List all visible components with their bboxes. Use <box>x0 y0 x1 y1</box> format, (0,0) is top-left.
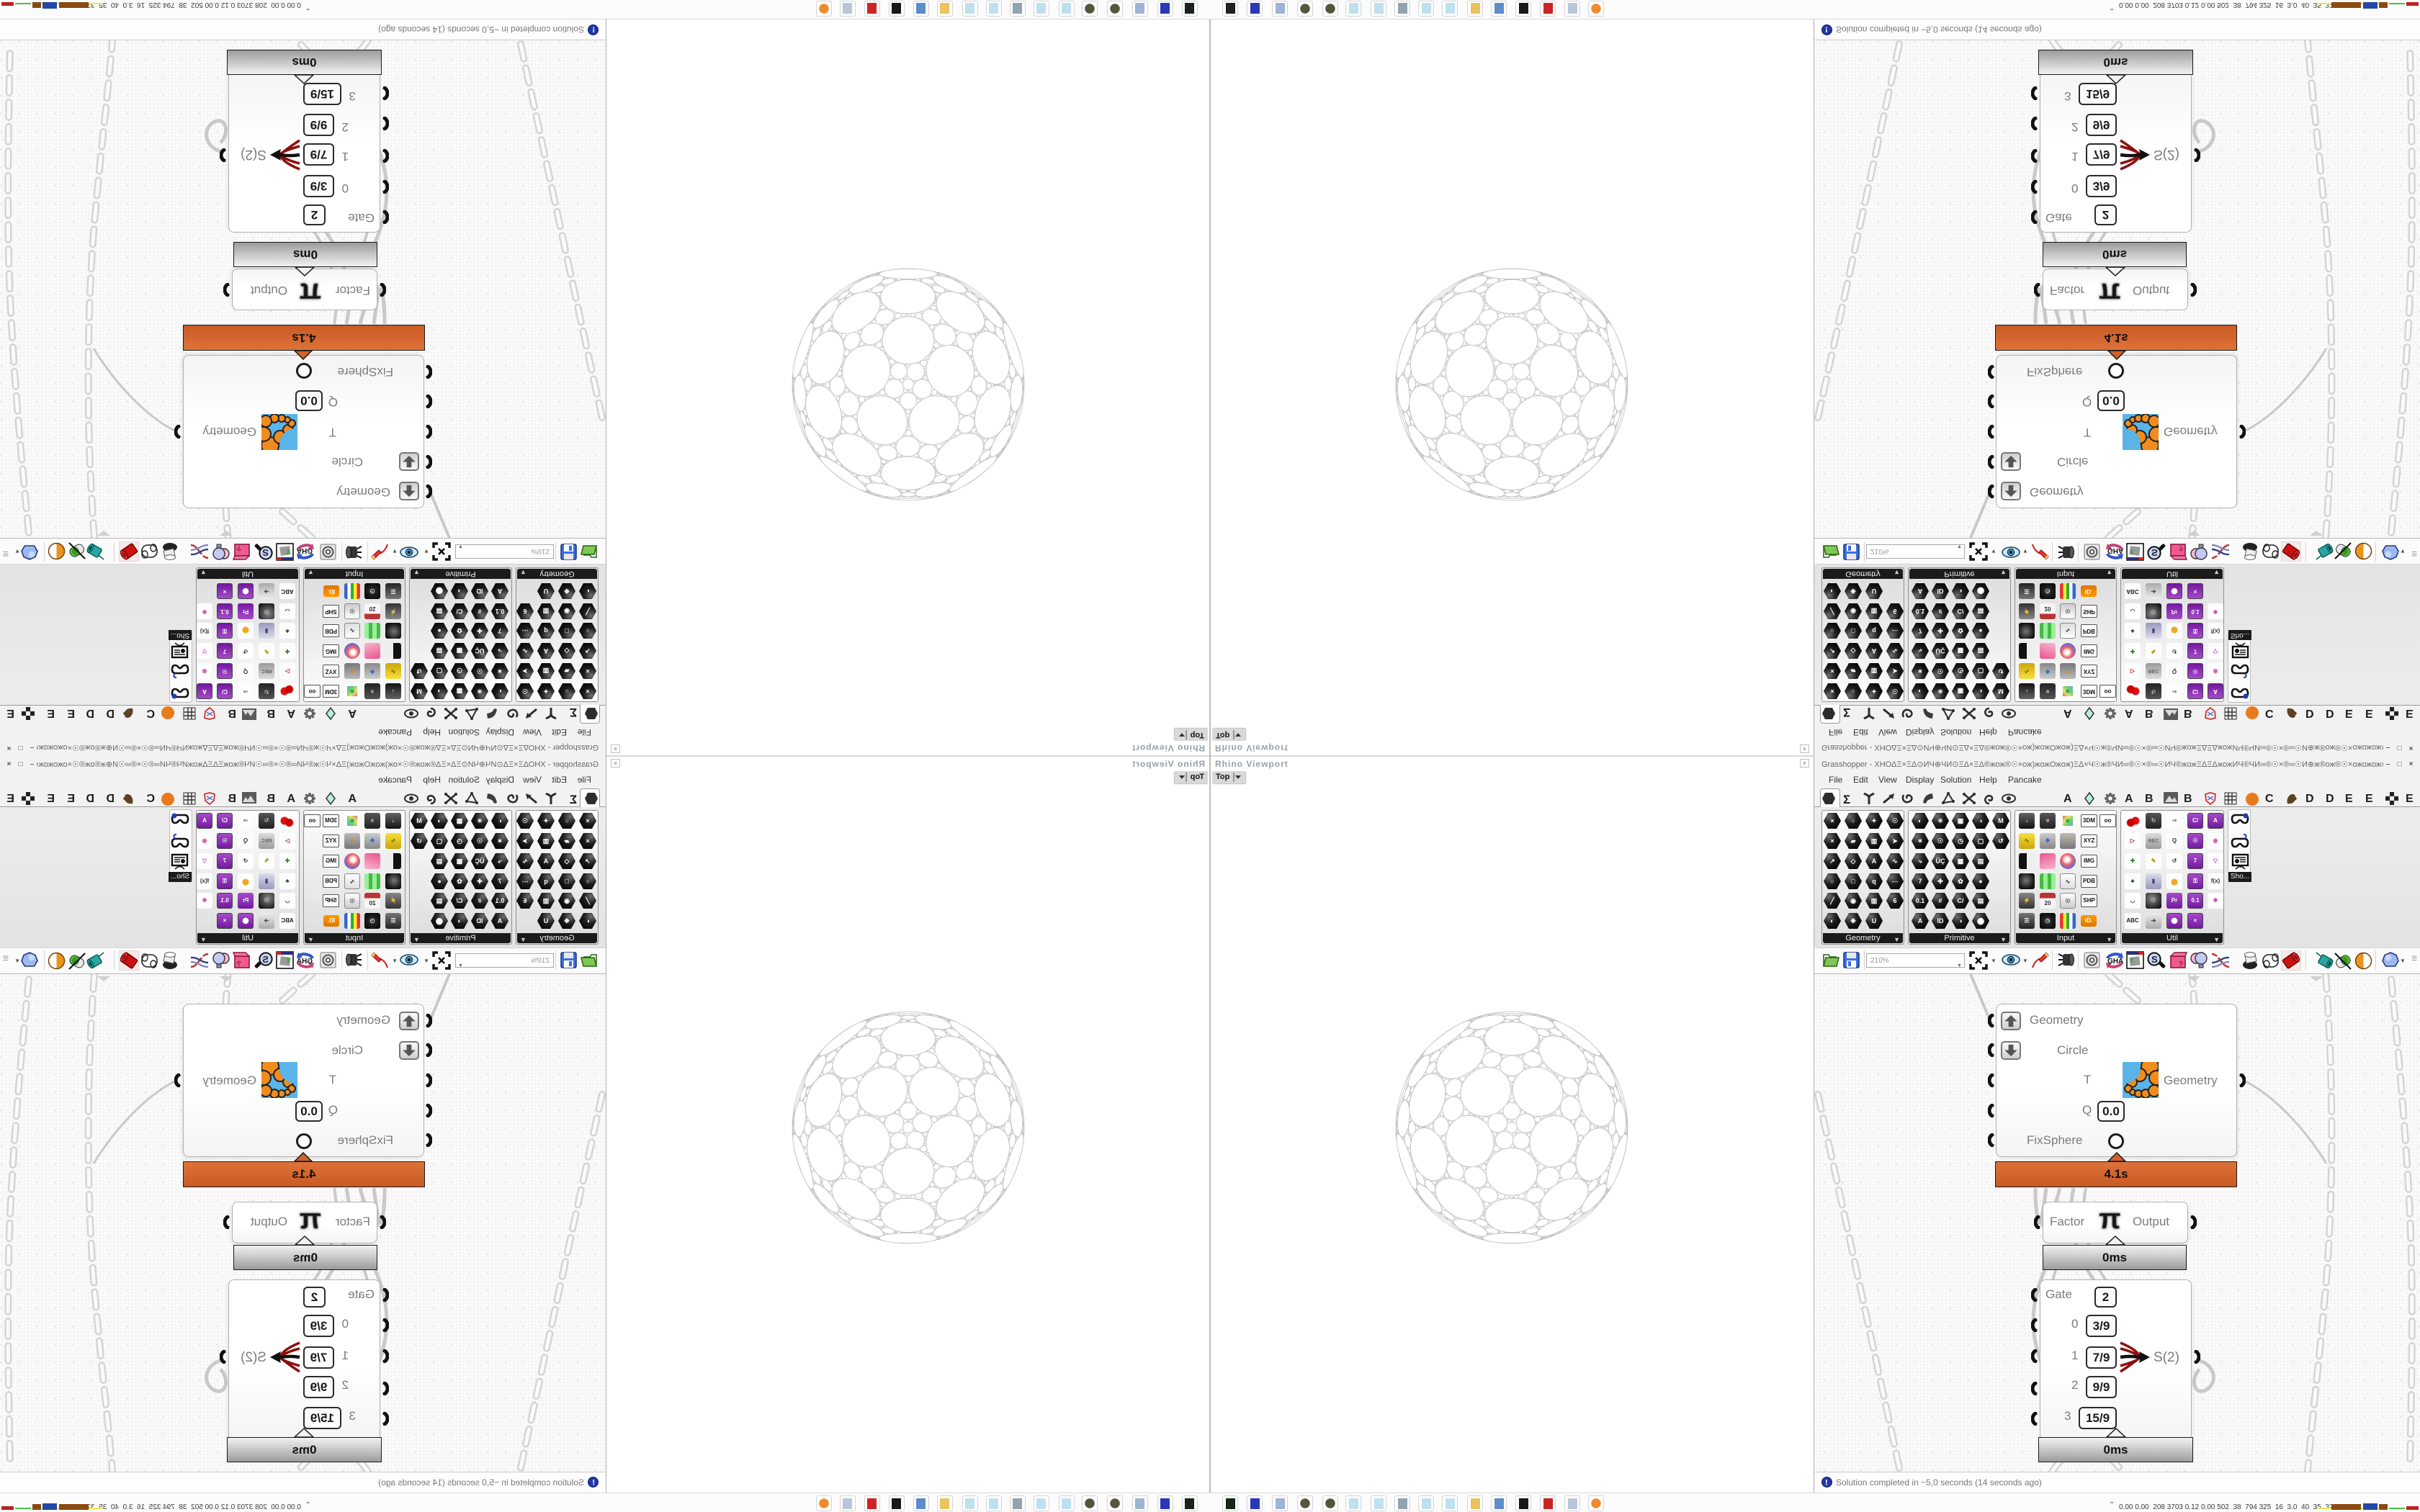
svg-text:!: ! <box>1825 1479 1828 1488</box>
svg-text:!: ! <box>592 1479 595 1488</box>
svg-text:GHA: GHA <box>297 958 313 966</box>
svg-text:S: S <box>262 547 269 558</box>
svg-text:GHA: GHA <box>297 546 313 554</box>
svg-text:S: S <box>2151 547 2158 558</box>
svg-text:GHA: GHA <box>2107 546 2123 554</box>
svg-text:?: ? <box>237 544 241 552</box>
svg-text:!: ! <box>592 25 595 34</box>
svg-text:S: S <box>262 954 269 965</box>
svg-text:?: ? <box>2179 960 2183 968</box>
svg-text:!: ! <box>1825 25 1828 34</box>
svg-text:?: ? <box>2179 544 2183 552</box>
svg-text:GHA: GHA <box>2107 958 2123 966</box>
svg-text:?: ? <box>237 960 241 968</box>
svg-text:S: S <box>2151 954 2158 965</box>
